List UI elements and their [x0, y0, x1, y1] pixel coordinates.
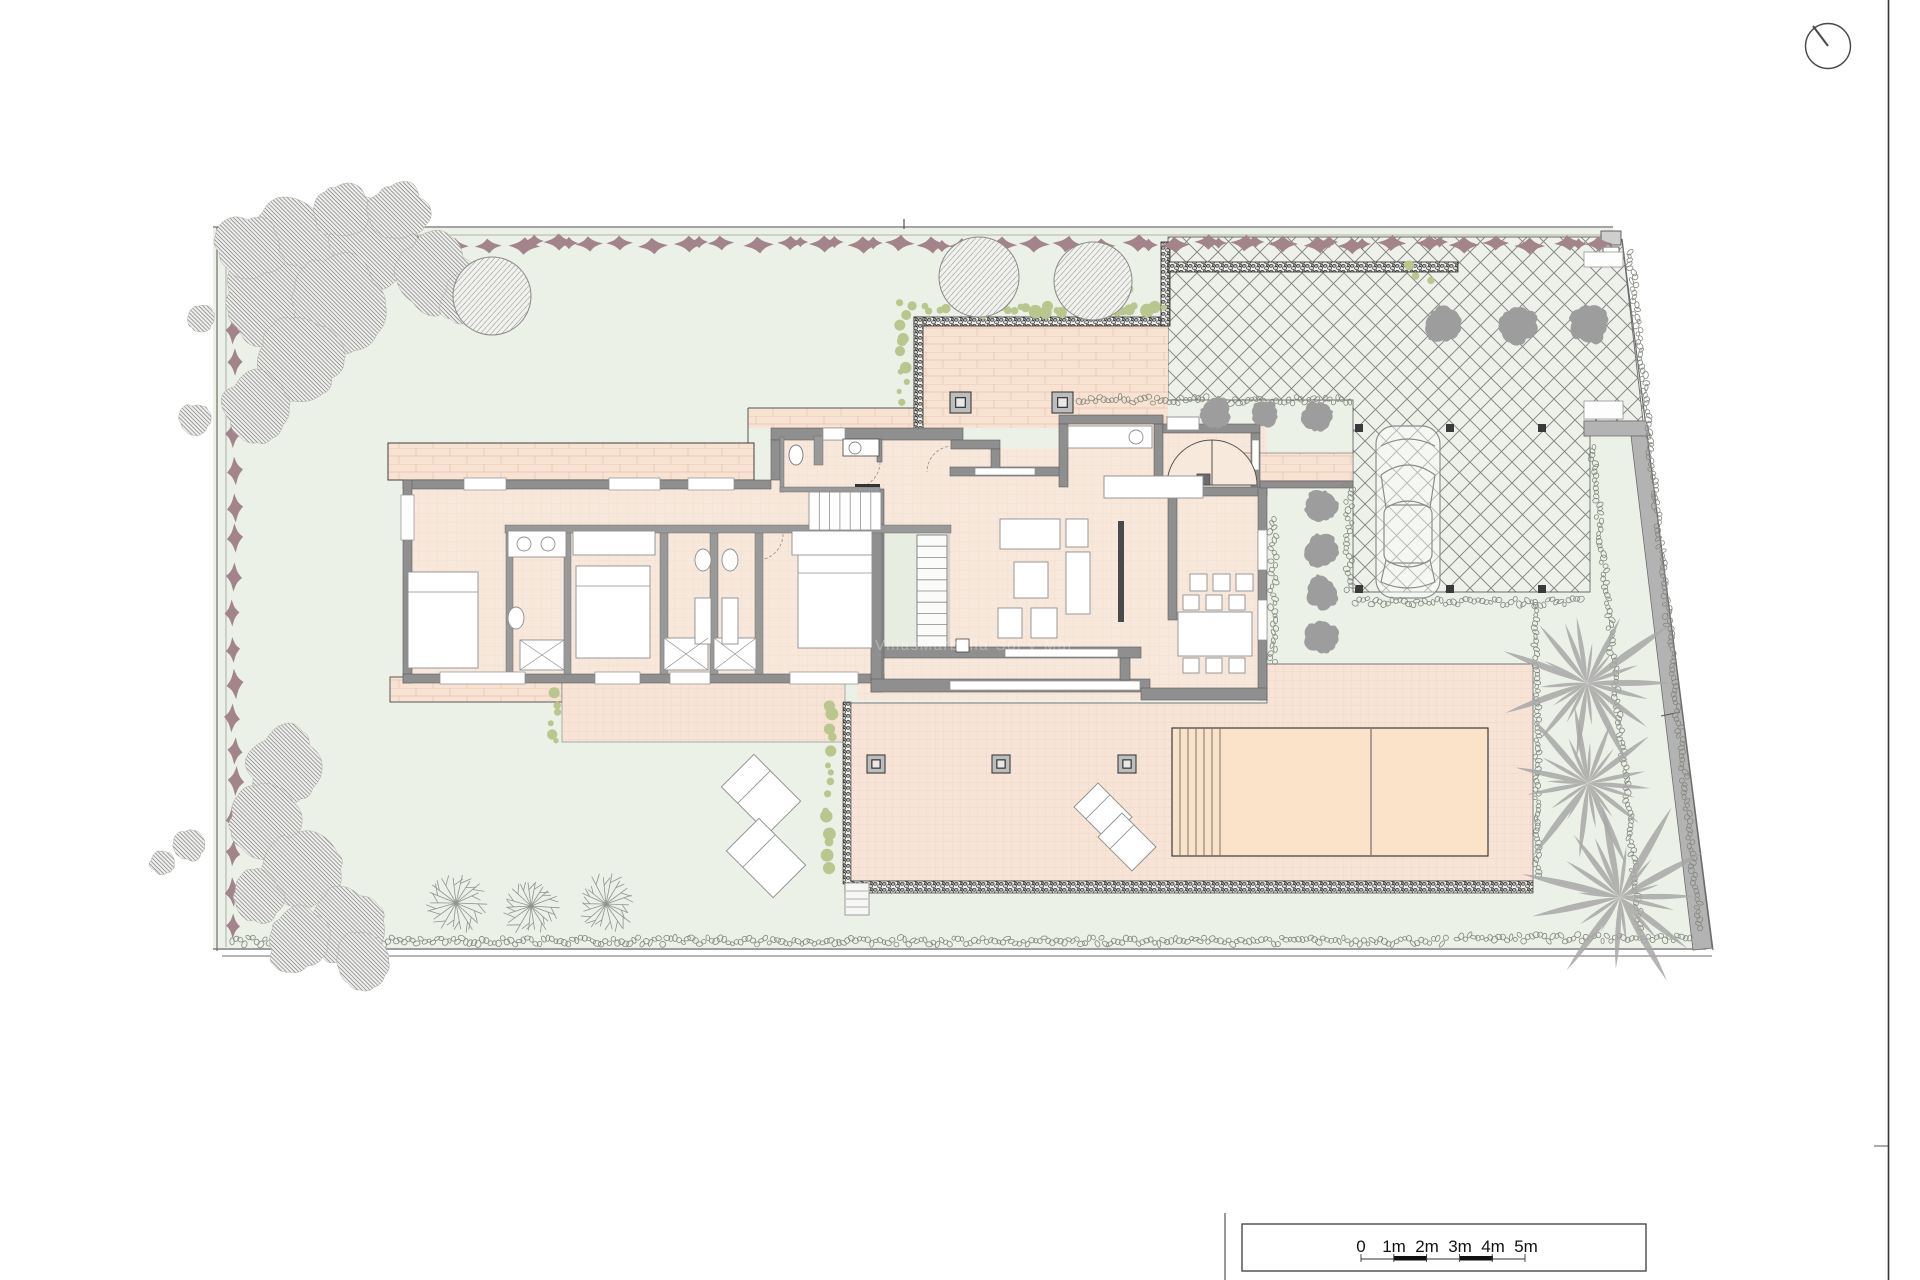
svg-text:4m: 4m: [1481, 1237, 1505, 1256]
svg-text:1m: 1m: [1382, 1237, 1406, 1256]
svg-text:2m: 2m: [1415, 1237, 1439, 1256]
svg-text:5m: 5m: [1514, 1237, 1538, 1256]
svg-text:VillasMarbella-Sol-y-Mar: VillasMarbella-Sol-y-Mar: [875, 637, 1074, 654]
svg-text:3m: 3m: [1448, 1237, 1472, 1256]
svg-text:0: 0: [1356, 1237, 1365, 1256]
